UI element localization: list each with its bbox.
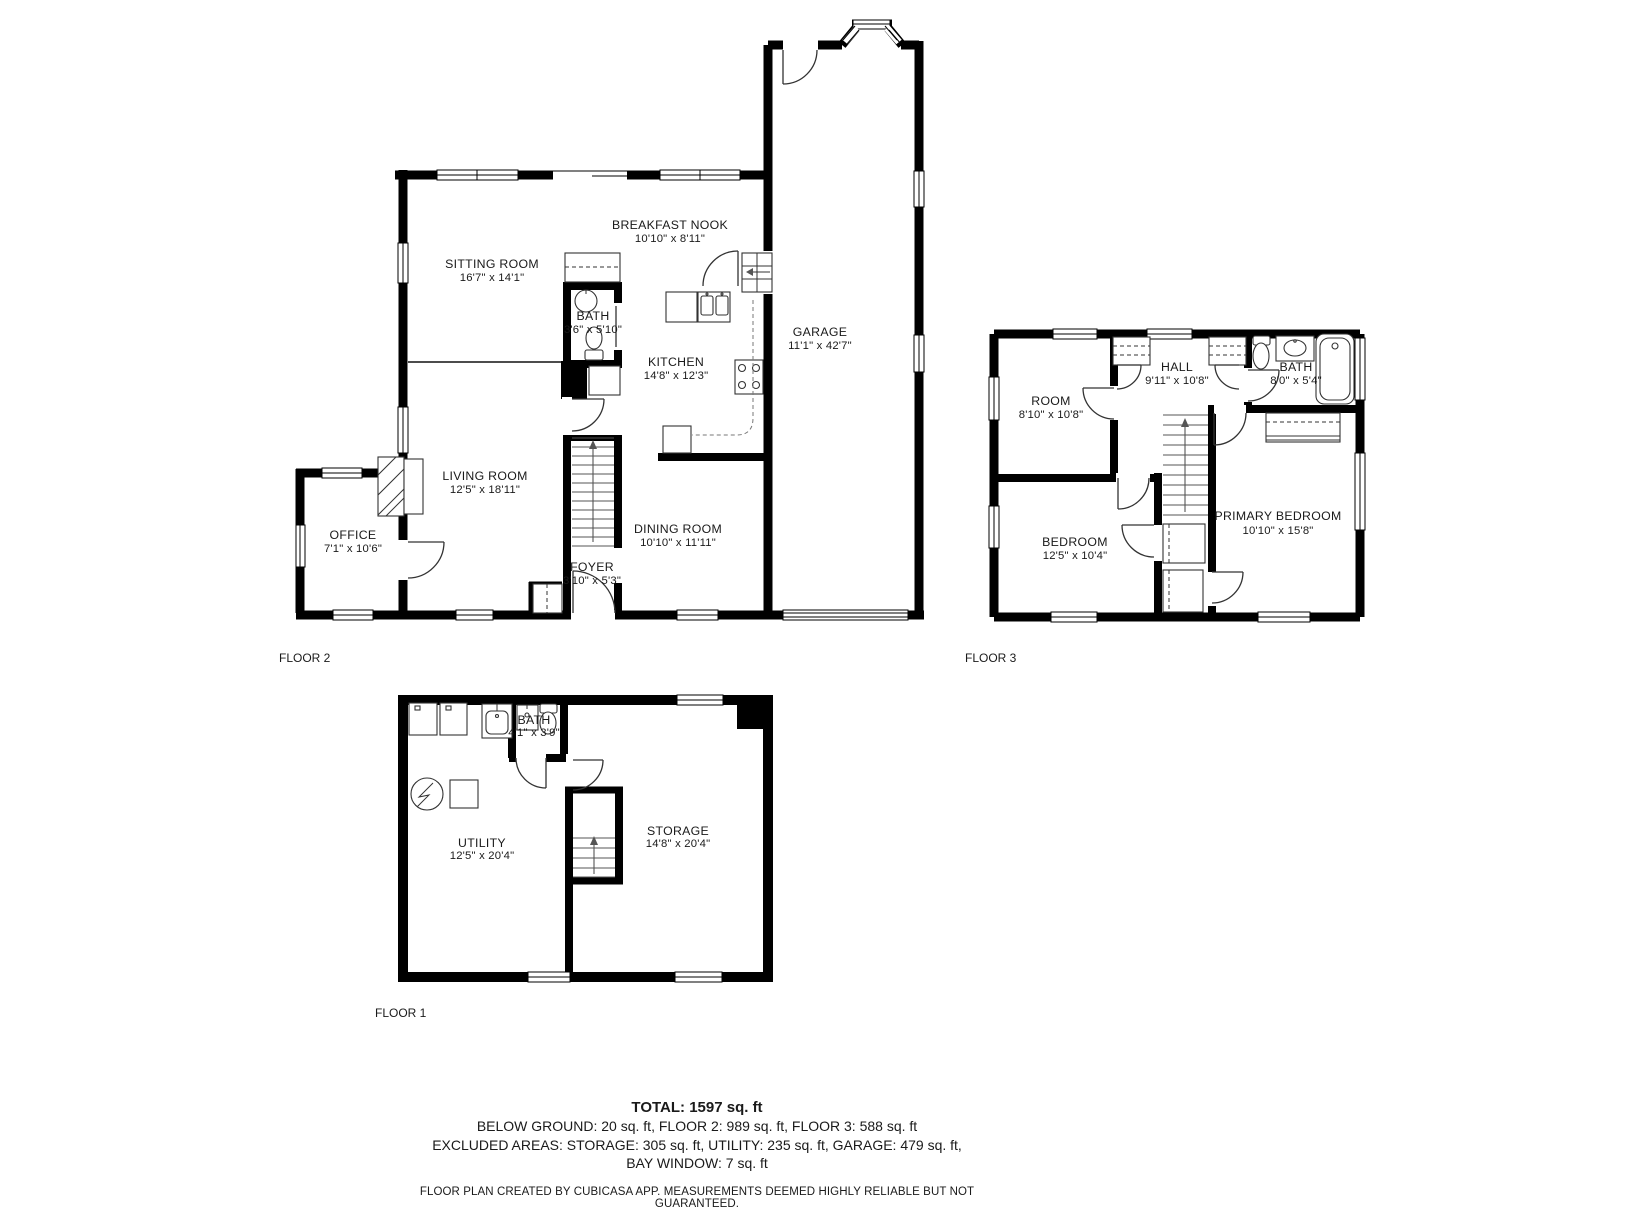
- room-dims-garage: 11'1" x 42'7": [788, 340, 852, 352]
- room-name-utility: UTILITY: [458, 836, 506, 850]
- room-name-bedroom: BEDROOM: [1042, 535, 1108, 549]
- floor-plan-page: SITTING ROOM 16'7" x 14'1" BREAKFAST NOO…: [0, 0, 1638, 1229]
- bath2-closet: [565, 253, 620, 282]
- bathtub-fixture: [1316, 334, 1354, 404]
- room-dims-bath2: 3'6" x 5'10": [564, 324, 622, 336]
- closet-b-door: [1212, 572, 1243, 603]
- storage-door: [573, 760, 603, 790]
- room-dims-bath3: 8'0" x 5'4": [1270, 375, 1322, 387]
- dishwasher-fixture: [663, 426, 691, 453]
- room-dims-sitting-room: 16'7" x 14'1": [460, 272, 525, 284]
- floor2-caption: FLOOR 2: [279, 651, 330, 665]
- room-name-sitting-room: SITTING ROOM: [445, 257, 539, 271]
- room-name-office: OFFICE: [330, 528, 377, 542]
- fridge-fixture: [666, 292, 697, 322]
- floor1-door-gaps: [516, 753, 546, 762]
- room-dims-storage: 14'8" x 20'4": [646, 838, 711, 850]
- room-dims-foyer: 3'10" x 5'3": [563, 575, 621, 587]
- bath1-door: [516, 758, 546, 788]
- dryer-fixture: [440, 703, 467, 735]
- hall-closet-right: [1209, 337, 1246, 365]
- garage-steps: [742, 253, 772, 292]
- area-line-bay-window: BAY WINDOW: 7 sq. ft: [397, 1154, 997, 1173]
- room-name-bath2: BATH: [576, 309, 609, 323]
- room-name-bath3: BATH: [1279, 360, 1312, 374]
- floor1-plan: BATH 4'1" x 3'9" UTILITY 12'5" x 20'4" S…: [395, 688, 780, 988]
- room-name-storage: STORAGE: [647, 824, 709, 838]
- floor2-plan: SITTING ROOM 16'7" x 14'1" BREAKFAST NOO…: [290, 10, 938, 628]
- floor2-stairs: [572, 438, 614, 546]
- bedroom-door: [1118, 478, 1149, 509]
- room-name-room: ROOM: [1031, 394, 1070, 408]
- hall-cabinet: [589, 366, 620, 395]
- closet-b: [1163, 570, 1203, 612]
- room-dims-dining-room: 10'10" x 11'11": [640, 537, 716, 549]
- area-line-floors: BELOW GROUND: 20 sq. ft, FLOOR 2: 989 sq…: [397, 1117, 997, 1136]
- kitchen-sink-fixture: [698, 292, 730, 322]
- room-dims-hall: 9'11" x 10'8": [1145, 375, 1209, 387]
- wall-corner-block: [737, 695, 773, 729]
- garage-door: [783, 610, 908, 620]
- living-kitchen-door: [572, 399, 604, 431]
- hall-closet-left: [1113, 337, 1150, 365]
- fireplace: [378, 457, 423, 516]
- primary-closet: [1266, 413, 1340, 442]
- utility-box: [450, 780, 478, 808]
- room-dims-living-room: 12'5" x 18'11": [450, 484, 520, 496]
- room-dims-utility: 12'5" x 20'4": [450, 850, 515, 862]
- nook-garage-door: [703, 251, 738, 286]
- total-area: TOTAL: 1597 sq. ft: [397, 1098, 997, 1117]
- closet-a-door: [1122, 525, 1154, 557]
- room-name-living-room: LIVING ROOM: [442, 469, 527, 483]
- chimney-block: [561, 361, 587, 399]
- closet-a: [1163, 524, 1205, 563]
- room-dims-primary-bedroom: 10'10" x 15'8": [1242, 525, 1313, 537]
- stove-fixture: [735, 360, 763, 394]
- room-dims-breakfast-nook: 10'10" x 8'11": [635, 233, 705, 245]
- room-name-foyer: FOYER: [570, 560, 614, 574]
- office-door: [408, 542, 444, 578]
- room-name-dining-room: DINING ROOM: [634, 522, 722, 536]
- garage-exterior-door: [783, 50, 817, 84]
- room-name-primary-bedroom: PRIMARY BEDROOM: [1214, 509, 1341, 523]
- floor2-windows: [296, 20, 924, 620]
- floor1-stairs: [573, 836, 615, 877]
- washer-fixture: [409, 703, 437, 735]
- floor3-caption: FLOOR 3: [965, 651, 1016, 665]
- foyer-closet: [533, 584, 562, 613]
- room-name-breakfast-nook: BREAKFAST NOOK: [612, 218, 729, 232]
- room-dims-bedroom: 12'5" x 10'4": [1043, 550, 1108, 562]
- disclaimer-text: FLOOR PLAN CREATED BY CUBICASA APP. MEAS…: [397, 1186, 997, 1210]
- room-dims-kitchen: 14'8" x 12'3": [644, 370, 709, 382]
- floor1-walls: [398, 695, 773, 977]
- bath3-toilet-fixture: [1253, 336, 1270, 369]
- room-name-hall: HALL: [1161, 360, 1193, 374]
- area-line-excluded: EXCLUDED AREAS: STORAGE: 305 sq. ft, UTI…: [397, 1136, 997, 1155]
- area-summary: TOTAL: 1597 sq. ft BELOW GROUND: 20 sq. …: [397, 1098, 997, 1173]
- floor3-stairs: [1163, 415, 1208, 515]
- hall-closet-right-door: [1215, 365, 1239, 389]
- primary-bedroom-door: [1214, 413, 1246, 445]
- room-name-kitchen: KITCHEN: [648, 355, 704, 369]
- room-dims-office: 7'1" x 10'6": [324, 543, 382, 555]
- water-heater-fixture: [411, 778, 443, 810]
- floor1-caption: FLOOR 1: [375, 1006, 426, 1020]
- hall-closet-left-door: [1117, 365, 1141, 389]
- floor3-plan: ROOM 8'10" x 10'8" HALL 9'11" x 10'8" BA…: [985, 325, 1370, 627]
- room-name-bath1: BATH: [517, 713, 550, 727]
- room-name-garage: GARAGE: [793, 325, 847, 339]
- bath3-sink-fixture: [1276, 336, 1314, 361]
- room-dims-bath1: 4'1" x 3'9": [508, 727, 560, 739]
- room-dims-room: 8'10" x 10'8": [1019, 409, 1084, 421]
